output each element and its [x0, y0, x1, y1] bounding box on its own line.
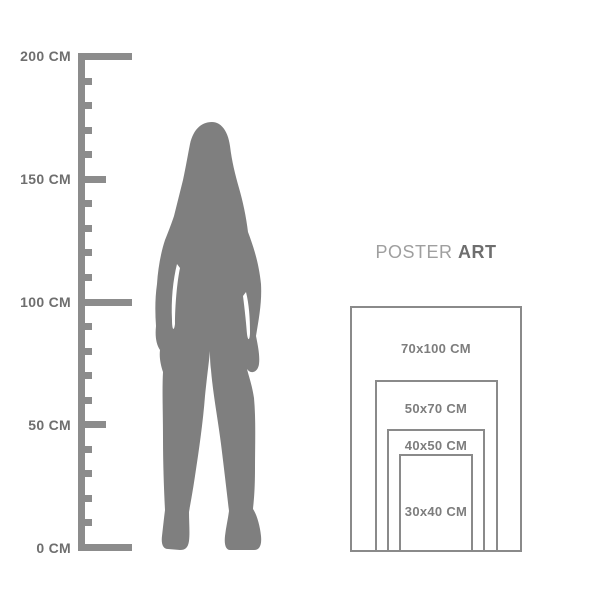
poster-size-frames: 70x100 CM50x70 CM40x50 CM30x40 CM: [0, 0, 600, 600]
poster-size-label-50x70: 50x70 CM: [377, 401, 496, 417]
poster-frame-30x40: 30x40 CM: [399, 454, 473, 552]
poster-size-label-70x100: 70x100 CM: [352, 341, 520, 357]
poster-size-label-30x40: 30x40 CM: [401, 504, 471, 520]
poster-size-guide: 0 CM50 CM100 CM150 CM200 CM POSTER ART 7…: [0, 0, 600, 600]
poster-size-label-40x50: 40x50 CM: [389, 438, 483, 454]
